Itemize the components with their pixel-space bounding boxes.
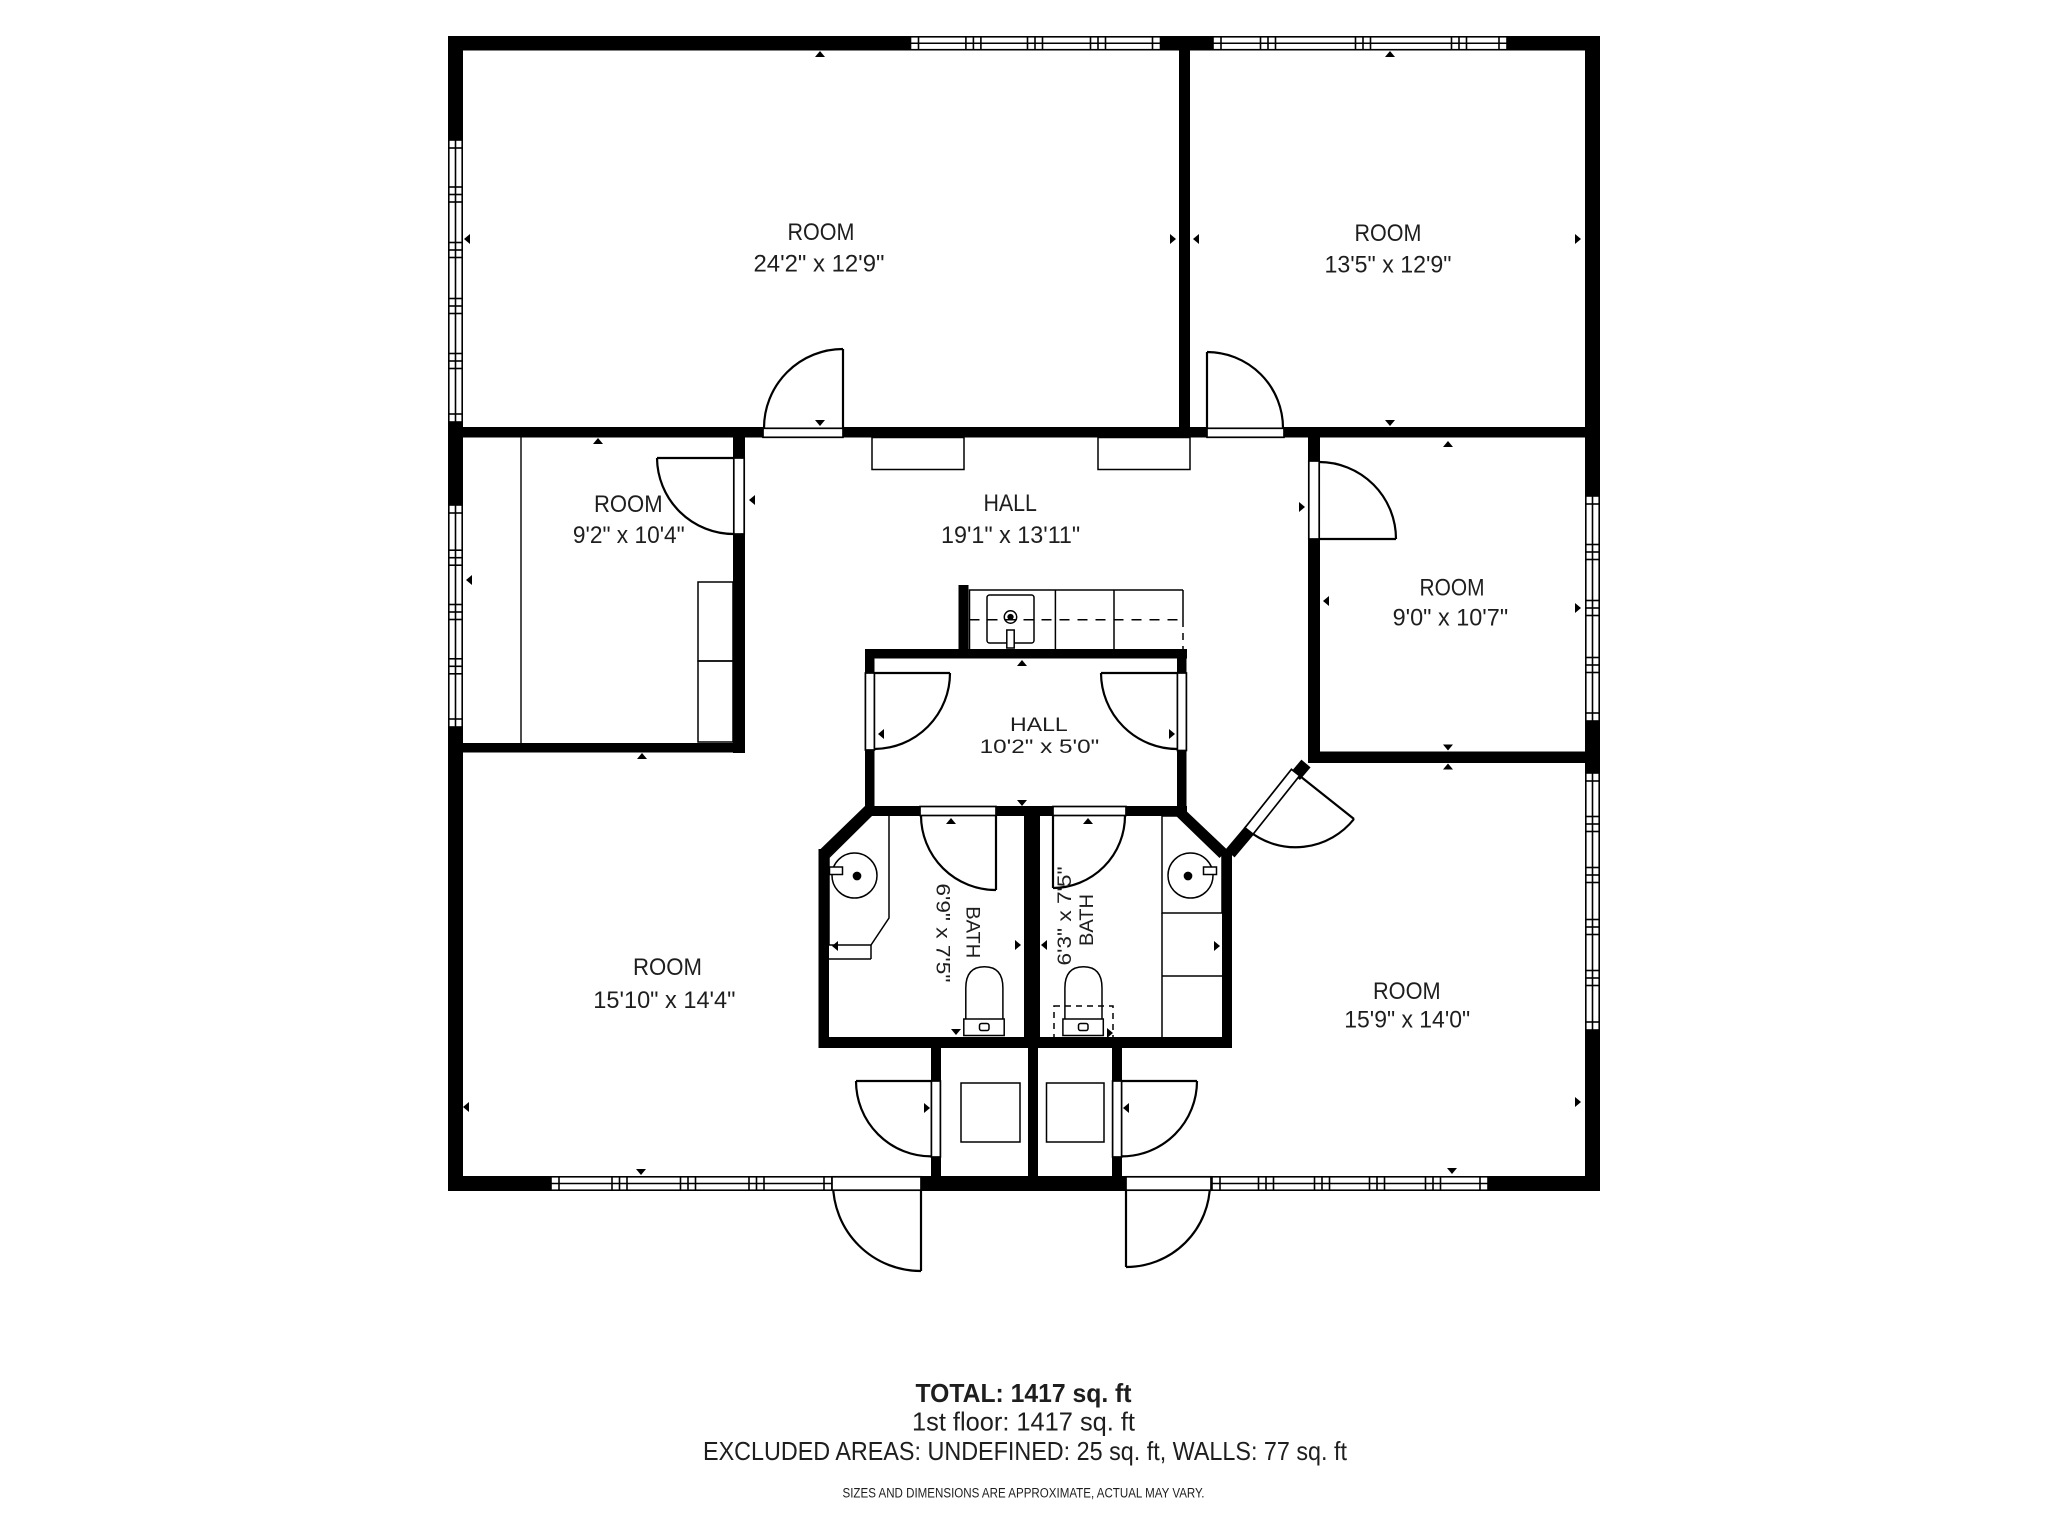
svg-text:TOTAL: 1417 sq. ft: TOTAL: 1417 sq. ft [916,1378,1132,1408]
svg-text:ROOM: ROOM [1355,220,1422,247]
svg-text:BATH: BATH [1076,894,1098,946]
svg-text:10'2" x 5'0": 10'2" x 5'0" [980,736,1100,758]
svg-text:SIZES AND DIMENSIONS ARE APPRO: SIZES AND DIMENSIONS ARE APPROXIMATE, AC… [843,1486,1205,1501]
svg-text:9'0" x 10'7": 9'0" x 10'7" [1393,605,1509,632]
svg-text:BATH: BATH [961,906,983,958]
svg-text:6'3" x 7'5": 6'3" x 7'5" [1054,866,1076,965]
svg-text:24'2" x 12'9": 24'2" x 12'9" [754,251,885,278]
svg-text:ROOM: ROOM [594,491,663,518]
svg-text:HALL: HALL [1010,714,1068,736]
svg-text:9'2" x 10'4": 9'2" x 10'4" [573,522,685,549]
svg-text:ROOM: ROOM [1420,575,1485,602]
svg-text:HALL: HALL [983,490,1037,517]
svg-text:EXCLUDED AREAS: UNDEFINED: 25: EXCLUDED AREAS: UNDEFINED: 25 sq. ft, WA… [703,1436,1348,1466]
svg-text:15'9" x 14'0": 15'9" x 14'0" [1344,1007,1470,1034]
svg-text:ROOM: ROOM [1373,978,1441,1005]
svg-text:19'1" x 13'11": 19'1" x 13'11" [941,522,1080,549]
svg-text:ROOM: ROOM [788,219,855,246]
svg-text:15'10" x 14'4": 15'10" x 14'4" [593,987,735,1014]
svg-text:6'9" x 7'5": 6'9" x 7'5" [932,883,954,982]
svg-text:13'5" x 12'9": 13'5" x 12'9" [1325,252,1452,279]
svg-text:1st floor: 1417 sq. ft: 1st floor: 1417 sq. ft [912,1407,1136,1437]
svg-text:ROOM: ROOM [633,954,702,981]
